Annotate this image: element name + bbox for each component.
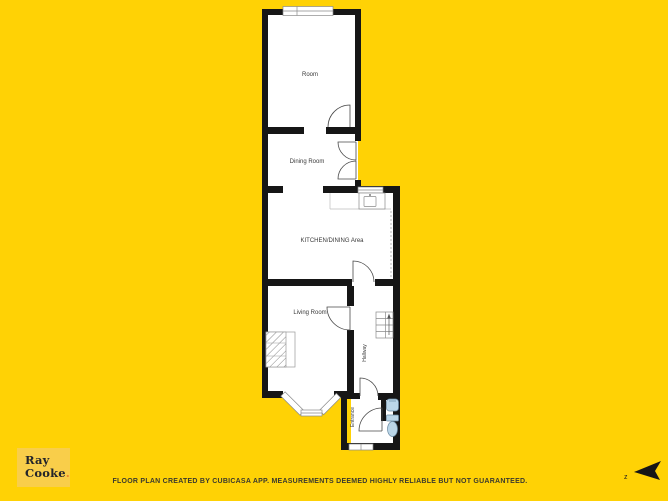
floorplan-drawing: Room Dining Room KITCHEN/DINING Area Liv… [0, 0, 668, 501]
room-label-room: Room [302, 72, 318, 78]
room-label-kitchen: KITCHEN/DINING Area [300, 238, 364, 244]
floorplan-page: Room Dining Room KITCHEN/DINING Area Liv… [0, 0, 668, 501]
floor-areas [265, 12, 397, 447]
sink-basin [364, 197, 376, 207]
sink-faucet [369, 194, 371, 196]
fireplace [266, 332, 295, 367]
wc-fixtures [387, 399, 399, 437]
room-label-living: Living Room [293, 310, 326, 316]
stairs [376, 312, 393, 338]
north-arrow-icon [634, 461, 661, 480]
room-label-hallway: Hallway [362, 344, 368, 362]
toilet-bowl [388, 422, 398, 437]
room-label-entrance: Entrance [350, 407, 356, 427]
disclaimer-text: FLOOR PLAN CREATED BY CUBICASA APP. MEAS… [0, 478, 640, 485]
toilet-tank [387, 415, 399, 421]
room-label-dining: Dining Room [290, 159, 325, 165]
compass: z [618, 458, 664, 486]
compass-letter: z [624, 474, 628, 481]
